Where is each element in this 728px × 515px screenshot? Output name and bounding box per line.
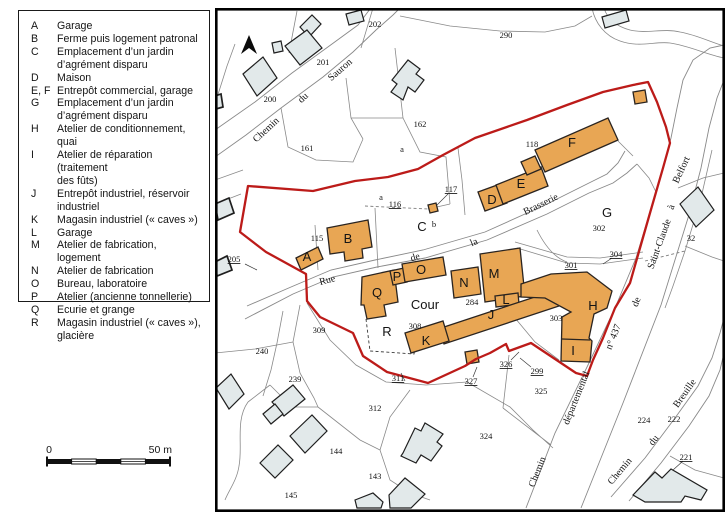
legend-key: D (31, 72, 57, 85)
building-label-F: F (568, 135, 576, 150)
parcel-label: b (432, 219, 436, 229)
parcel-label: 327 (465, 376, 478, 386)
building-label-L: L (502, 292, 509, 307)
legend-entry: NAtelier de fabrication (31, 265, 203, 278)
legend-label: Atelier de réparation (traitement des fû… (57, 149, 203, 188)
legend-key: C (31, 46, 57, 72)
building-label-E: E (517, 176, 526, 191)
map-svg: 202 290 201 200 162 161 a 118 117 a 116 … (215, 8, 725, 512)
parcel-label: 312 (369, 403, 382, 413)
parcel-label: 309 (313, 325, 326, 335)
legend-label: Atelier de conditionnement, quai (57, 123, 203, 149)
legend-key: R (31, 317, 57, 343)
street-label: Chemin (606, 456, 635, 487)
legend-key: Q (31, 304, 57, 317)
legend-label: Maison (57, 72, 203, 85)
building-label-H: H (588, 298, 597, 313)
scale-bar-svg: 0 50 m (38, 440, 188, 474)
legend-key: B (31, 33, 57, 46)
building-outline (216, 374, 244, 409)
building-label-I: I (571, 343, 575, 358)
building-label-K: K (422, 333, 431, 348)
area-label-G: G (602, 205, 612, 220)
parcel-label: 299 (531, 366, 544, 376)
legend-label: Bureau, laboratoire (57, 278, 203, 291)
street-label: du (647, 433, 662, 448)
legend-label: Atelier (ancienne tonnellerie) (57, 291, 203, 304)
page: AGarage BFerme puis logement patronal CE… (0, 0, 728, 515)
parcel-label: 32 (687, 233, 696, 243)
legend-key: N (31, 265, 57, 278)
parcel-label: 161 (301, 143, 314, 153)
building-outline (272, 41, 283, 53)
building-outline (633, 469, 707, 502)
scale-bar-graphic (47, 457, 170, 467)
parcel-label: 145 (285, 490, 298, 500)
parcel-label: 118 (526, 139, 538, 149)
parcel-label: 117 (445, 184, 457, 194)
parcel-label: a (379, 192, 383, 202)
legend-label: Atelier de fabrication (57, 265, 203, 278)
legend-entry: LGarage (31, 227, 203, 240)
legend-panel: AGarage BFerme puis logement patronal CE… (18, 10, 210, 302)
parcel-label: 308 (409, 321, 422, 331)
parcel-label: 290 (500, 30, 513, 40)
parcel-label: 116 (389, 199, 401, 209)
building-outline (355, 493, 383, 508)
parcel-label: 224 (638, 415, 652, 425)
building-label-B: B (344, 231, 353, 246)
legend-entry: HAtelier de conditionnement, quai (31, 123, 203, 149)
parcel-label: 324 (480, 431, 494, 441)
building-label-J: J (488, 307, 495, 322)
building-label-R: R (382, 324, 391, 339)
legend-entry: BFerme puis logement patronal (31, 33, 203, 46)
street-label: du (296, 91, 311, 106)
legend-key: L (31, 227, 57, 240)
building-117 (428, 203, 438, 213)
building-label-M: M (489, 266, 500, 281)
parcel-label: 240 (256, 346, 269, 356)
building-outline (215, 198, 234, 220)
parcel-label: 202 (369, 19, 382, 29)
building-outline (680, 187, 714, 227)
legend-entry: KMagasin industriel (« caves ») (31, 214, 203, 227)
legend-label: Entrepôt industriel, réservoir industrie… (57, 188, 203, 214)
parcel-label: 326 (500, 359, 513, 369)
legend-entry: E, FEntrepôt commercial, garage (31, 85, 203, 98)
building-outline (401, 423, 443, 463)
parcel-label: 302 (593, 223, 606, 233)
street-label: de (630, 295, 644, 308)
legend-label: Garage (57, 227, 203, 240)
building-outline (260, 445, 293, 478)
legend-label: Garage (57, 20, 203, 33)
legend-entry: CEmplacement d’un jardin d’agrément disp… (31, 46, 203, 72)
legend-key: E, F (31, 85, 57, 98)
legend-label: Ferme puis logement patronal (57, 33, 203, 46)
parcel-label: 144 (330, 446, 344, 456)
legend-key: K (31, 214, 57, 227)
legend-entry: GEmplacement d’un jardin d’agrément disp… (31, 97, 203, 123)
legend-entry: RMagasin industriel (« caves »), glacièr… (31, 317, 203, 343)
legend-label: Atelier de fabrication, logement (57, 239, 203, 265)
parcel-label: a (400, 144, 404, 154)
legend-label: Emplacement d’un jardin d’agrément dispa… (57, 46, 203, 72)
parcel-label: 162 (414, 119, 427, 129)
legend-label: Emplacement d’un jardin d’agrément dispa… (57, 97, 203, 123)
legend-entry: OBureau, laboratoire (31, 278, 203, 291)
street-label: Chemin (527, 455, 549, 488)
legend-entry: QEcurie et grange (31, 304, 203, 317)
legend-entry: PAtelier (ancienne tonnellerie) (31, 291, 203, 304)
legend-key: O (31, 278, 57, 291)
legend-key: M (31, 239, 57, 265)
map-panel: 202 290 201 200 162 161 a 118 117 a 116 … (215, 8, 725, 512)
parcel-label: 143 (369, 471, 382, 481)
street-label: Brasserie (522, 191, 561, 217)
legend-entry: IAtelier de réparation (traitement des f… (31, 149, 203, 188)
legend-key: G (31, 97, 57, 123)
parcel-label: 222 (668, 414, 681, 424)
legend-label: Magasin industriel (« caves »), glacière (57, 317, 203, 343)
building-label-O: O (416, 262, 426, 277)
building-label-D: D (487, 192, 496, 207)
street-label: Breuille (671, 377, 699, 410)
building-label-N: N (459, 275, 468, 290)
legend-entry: JEntrepôt industriel, réservoir industri… (31, 188, 203, 214)
street-label: Saint-Claude (646, 217, 674, 270)
parcel-label: 239 (289, 374, 302, 384)
legend-key: A (31, 20, 57, 33)
parcel-label: 284 (466, 297, 480, 307)
legend-key: H (31, 123, 57, 149)
street-label: Sauron (326, 57, 355, 84)
parcel-label: 301 (565, 260, 578, 270)
parcel-label: 205 (228, 254, 241, 264)
area-label-cour: Cour (411, 297, 440, 312)
building-label-A: A (303, 249, 312, 264)
parcel-label: 221 (680, 452, 693, 462)
parcel-label: 200 (264, 94, 277, 104)
legend-key: J (31, 188, 57, 214)
parcel-label: 304 (610, 249, 624, 259)
legend-entry: DMaison (31, 72, 203, 85)
street-label: départemental (561, 370, 592, 427)
parcel-label: 303 (550, 313, 563, 323)
legend-key: I (31, 149, 57, 188)
legend-entry: AGarage (31, 20, 203, 33)
legend-label: Entrepôt commercial, garage (57, 85, 203, 98)
parcel-label: 325 (535, 386, 548, 396)
scale-bar: 0 50 m (38, 440, 188, 474)
street-label: à (666, 203, 678, 211)
legend-label: Magasin industriel (« caves ») (57, 214, 203, 227)
building-small-ne (633, 90, 647, 104)
north-arrow-icon (241, 35, 257, 54)
street-label: Belfort (671, 155, 693, 186)
building-outline (346, 10, 364, 25)
scale-zero-label: 0 (46, 444, 52, 456)
parcel-label: 115 (311, 233, 323, 243)
building-label-Q: Q (372, 285, 382, 300)
parcel-label: 201 (317, 57, 330, 67)
legend-label: Ecurie et grange (57, 304, 203, 317)
street-label: Rue (318, 273, 337, 288)
parcel-label: 311 (392, 373, 404, 383)
building-outline (290, 415, 327, 453)
building-label-P: P (393, 269, 402, 284)
building-outline (391, 60, 424, 100)
building-outline (243, 57, 277, 96)
area-label-C: C (417, 219, 426, 234)
legend-key: P (31, 291, 57, 304)
legend-entry: MAtelier de fabrication, logement (31, 239, 203, 265)
building-F (535, 118, 618, 172)
scale-max-label: 50 m (149, 444, 173, 456)
